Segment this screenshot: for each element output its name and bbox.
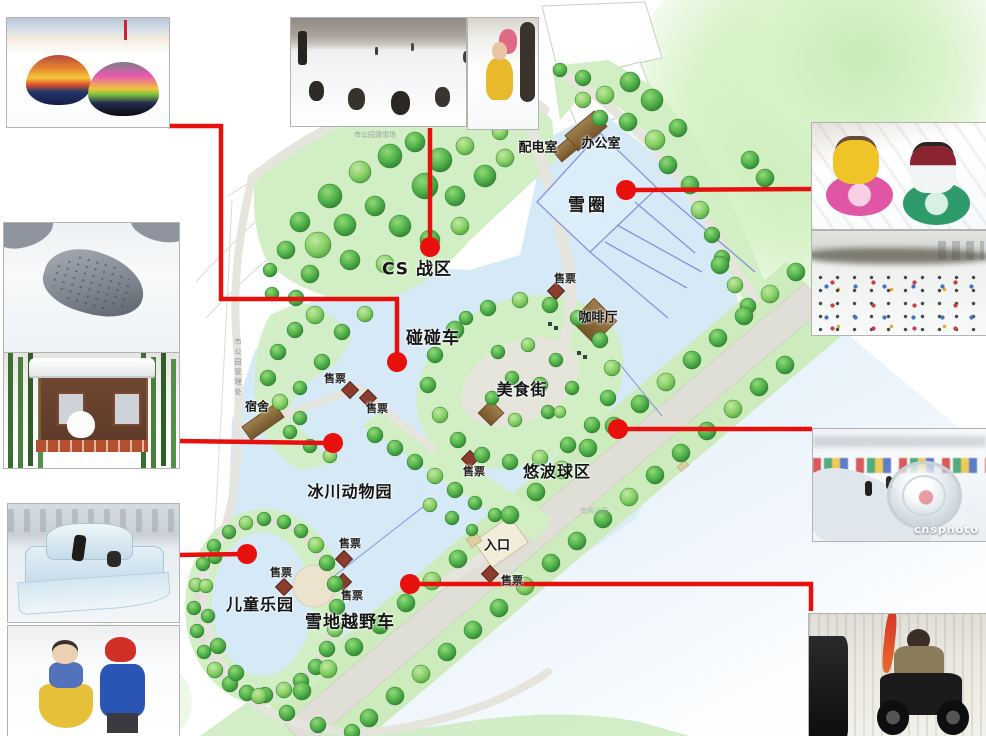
- kid-blue-coat: [100, 664, 144, 717]
- adult-figure: [520, 22, 535, 102]
- hutch-window-right: [113, 392, 142, 426]
- bumper-car-orange: [26, 55, 91, 105]
- atv-wheel-front: [877, 700, 909, 734]
- photo-snow-tubing: [811, 122, 986, 230]
- seal-small-right: [127, 222, 180, 248]
- atv-wheel-rear: [937, 700, 969, 734]
- photo-snow-atv: [808, 613, 986, 736]
- zorb-ball: [887, 461, 962, 530]
- photo-rabbit-house: [3, 352, 180, 469]
- photo-kids-snow-white: [7, 625, 180, 736]
- tree-line: [811, 248, 986, 265]
- photo-bumper-cars: [6, 17, 170, 128]
- photo-zorb-ball: cnsphoto: [812, 428, 986, 542]
- seal-small-left: [3, 222, 57, 255]
- mountain-ridge: [813, 436, 986, 447]
- rider-red-coat: [910, 146, 956, 193]
- connector-snow-tube: [630, 189, 811, 190]
- seal-main: [36, 239, 151, 327]
- kid-red-hat: [105, 637, 136, 661]
- photo-ice-sculpture: [7, 503, 180, 623]
- snow-white-bodice: [49, 662, 83, 689]
- snow-white-head: [52, 644, 78, 664]
- photo-river-crowd: [811, 230, 986, 336]
- connector-kids-paradise: [178, 554, 243, 555]
- atv-foreground: [808, 636, 848, 736]
- standing-figure: [298, 31, 307, 65]
- photo-watermark: cnsphoto: [914, 523, 979, 536]
- winter-park-guide-map: 配电室 办公室 雪圈 CS 战区 咖啡厅 碰碰车 美食街 悠波球区 冰川动物园 …: [0, 0, 986, 736]
- photo-cs-snow-battle: [290, 17, 467, 127]
- skating-crowd: [812, 271, 986, 335]
- walker-figure-1: [865, 481, 872, 496]
- kid-yellow-coat: [486, 58, 513, 100]
- bumper-car-pink: [88, 62, 159, 117]
- connector-glacier-zoo: [178, 441, 328, 443]
- bamboo-left: [8, 353, 13, 468]
- snow-white-skirt: [39, 684, 94, 728]
- brick-base: [36, 440, 148, 452]
- white-rabbit: [67, 411, 95, 439]
- kid-pants: [107, 713, 138, 733]
- sitting-figure: [107, 551, 121, 567]
- flag-pole: [124, 20, 127, 40]
- photo-seals: [3, 222, 180, 354]
- photo-kids-playing-snow: [467, 17, 539, 130]
- rider-yellow-coat: [833, 140, 879, 185]
- crawling-figures: [309, 81, 324, 101]
- snowy-roof: [29, 358, 155, 376]
